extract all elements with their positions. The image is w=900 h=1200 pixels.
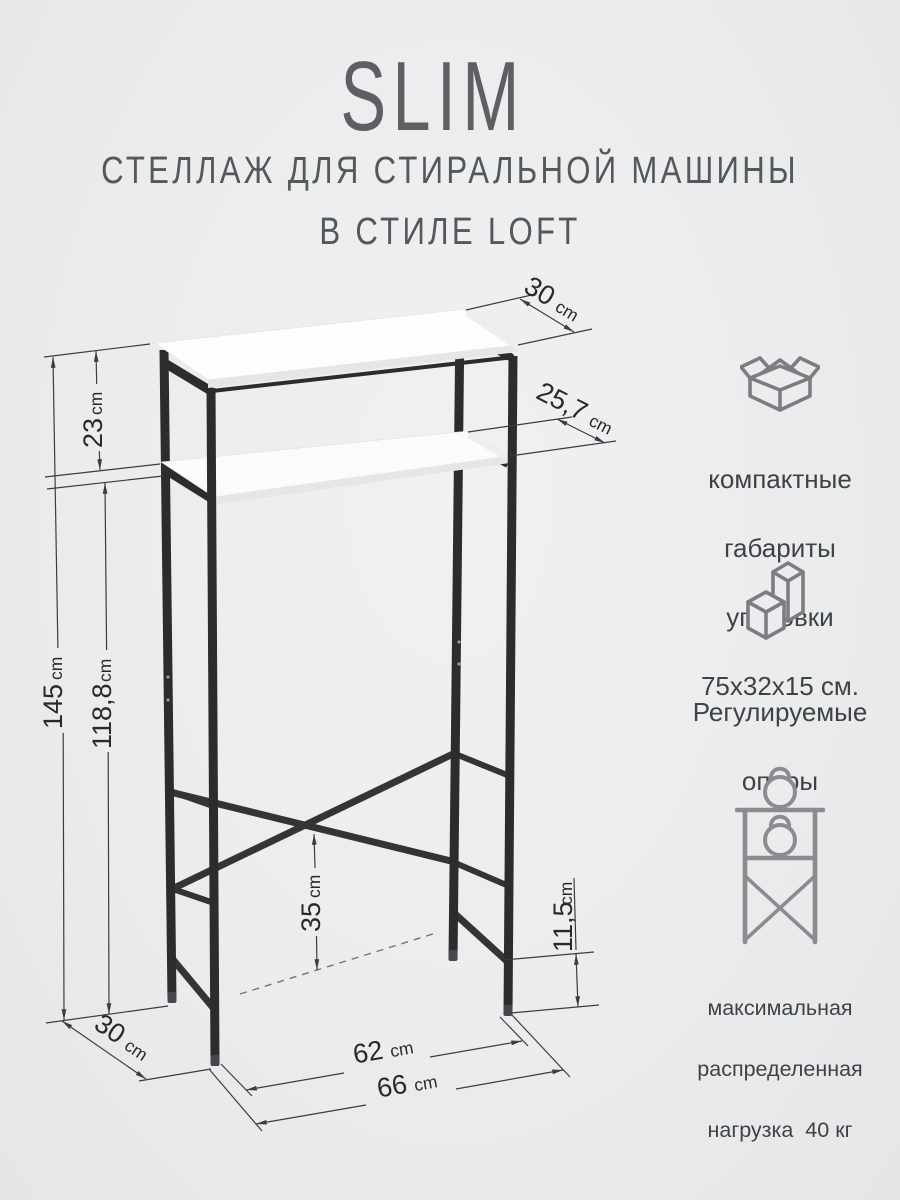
dim-base-depth-unit: cm bbox=[121, 1035, 152, 1065]
package-box-icon bbox=[740, 352, 820, 422]
dim-shelf-depth-unit: cm bbox=[586, 410, 616, 438]
dim-base-depth-value: 30 bbox=[89, 1008, 131, 1050]
extension-lines bbox=[44, 294, 616, 1131]
dim-shelf-depth-value: 25,7 bbox=[532, 376, 592, 427]
feature-text-line: распределенная bbox=[664, 1057, 896, 1082]
feature-text-line: компактные bbox=[664, 463, 896, 496]
dim-shelf-gap-unit: cm bbox=[86, 392, 106, 415]
dim-foot-clearance-value: 11,5 bbox=[548, 901, 578, 952]
floor-dashed-line bbox=[240, 933, 436, 994]
dim-top-depth: 30 cm bbox=[519, 270, 586, 332]
dim-total-height-value: 145 bbox=[38, 684, 68, 729]
feature-text-line: нагрузка 40 кг bbox=[664, 1118, 896, 1143]
dim-outer-width-value: 66 bbox=[375, 1069, 410, 1104]
feature-max-load: максимальная распределенная нагрузка 40 … bbox=[664, 764, 896, 1179]
dim-total-height-unit: cm bbox=[46, 657, 66, 680]
dim-brace-height-value: 35 bbox=[296, 902, 326, 932]
dim-inner-width-value: 62 bbox=[351, 1035, 386, 1070]
side-rails bbox=[170, 753, 512, 1010]
dim-clearance-height: 118,8 cm bbox=[87, 483, 117, 1014]
dim-shelf-gap-value: 23 bbox=[78, 418, 108, 448]
dim-outer-width: 66 cm bbox=[256, 1064, 563, 1124]
dim-outer-width-unit: cm bbox=[412, 1071, 438, 1095]
adjustable-feet-icon bbox=[740, 560, 820, 644]
dim-top-depth-value: 30 bbox=[519, 270, 560, 311]
dim-clearance-height-value: 118,8 bbox=[87, 683, 117, 749]
dim-total-height: 145 cm bbox=[38, 357, 68, 1020]
dim-inner-width-unit: cm bbox=[388, 1037, 414, 1061]
dim-brace-height: 35 cm bbox=[296, 834, 326, 970]
feature-text-line: максимальная bbox=[664, 996, 896, 1021]
feature-text-line: Регулируемые bbox=[664, 696, 896, 729]
dim-brace-height-unit: cm bbox=[304, 875, 324, 898]
max-load-icon bbox=[735, 764, 825, 946]
dim-foot-clearance-unit: cm bbox=[556, 882, 576, 905]
dim-shelf-depth: 25,7 cm bbox=[532, 376, 619, 443]
product-card: SLIM СТЕЛЛАЖ ДЛЯ СТИРАЛЬНОЙ МАШИНЫ В СТИ… bbox=[0, 0, 900, 1200]
dim-foot-clearance: 11,5 cm bbox=[548, 878, 578, 1007]
dim-clearance-height-unit: cm bbox=[95, 659, 115, 682]
dim-shelf-gap: 23 cm bbox=[78, 351, 108, 470]
